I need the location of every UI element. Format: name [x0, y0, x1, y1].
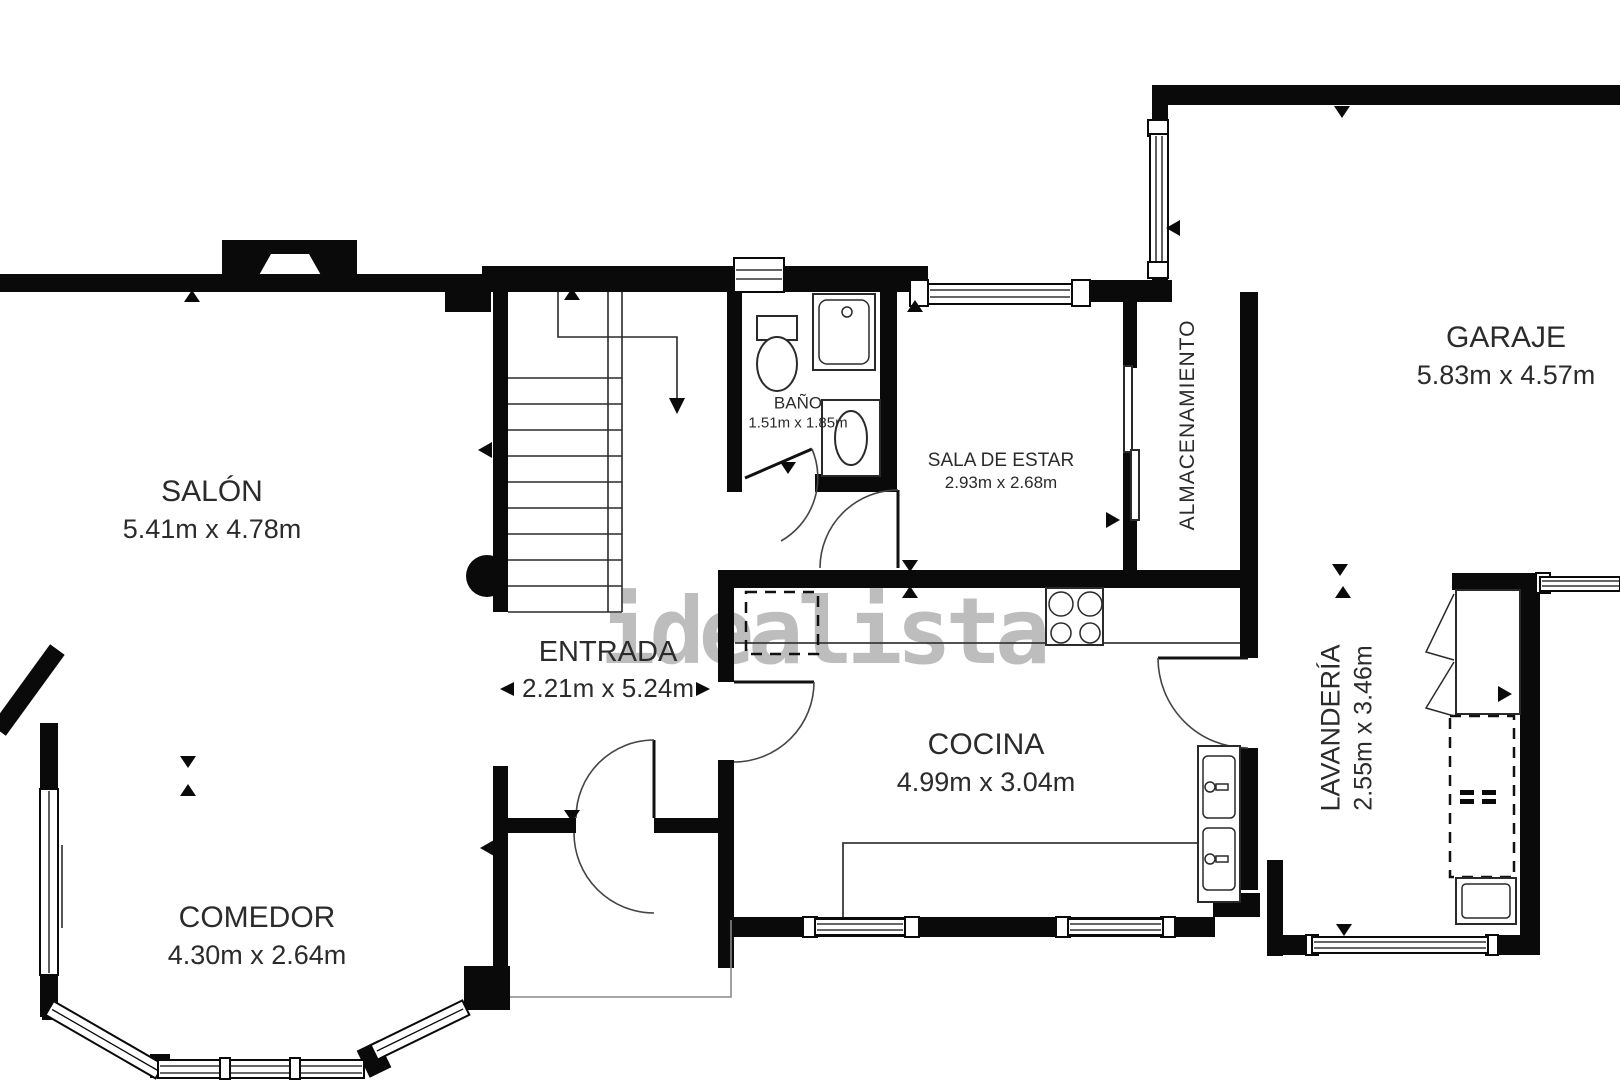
bay-window-bottom [158, 1058, 364, 1079]
sala-de-estar-name: SALA DE ESTAR [928, 449, 1074, 472]
garaje-dims: 5.83m x 4.57m [1417, 357, 1596, 393]
garage-left-window [1148, 120, 1168, 278]
kitchen-double-sink [1198, 746, 1240, 902]
bay-window-right-diagonal [371, 1000, 470, 1059]
comedor-name: COMEDOR [168, 899, 347, 937]
room-label-garaje: GARAJE 5.83m x 4.57m [1417, 319, 1596, 393]
sala-door [820, 490, 898, 568]
laundry-door [1158, 658, 1248, 748]
kitchen-door [734, 682, 814, 762]
comedor-left-window [40, 789, 62, 975]
stove [1046, 588, 1103, 645]
lavanderia-name: LAVANDERÍA [1314, 644, 1348, 811]
kitchen-window-right [1056, 917, 1175, 937]
lavanderia-d ims: 2.55m x 3.46m [1348, 644, 1381, 811]
room-label-entrada: ENTRADA 2.21m x 5.24m [522, 634, 694, 706]
garage-bottom-window [1536, 573, 1620, 593]
bathroom-fixtures [757, 294, 880, 476]
sala-de-estar-dims: 2.93m x 2.68m [928, 472, 1074, 493]
entrada-dims: 2.21m x 5.24m [522, 671, 694, 706]
bano-dims: 1.51m x 1.85m [748, 414, 847, 433]
kitchen-window-left [803, 917, 919, 937]
cocina-dims: 4.99m x 3.04m [897, 764, 1076, 800]
room-label-almacenamiento: ALMACENAMIENTO [1176, 320, 1200, 531]
cocina-name: COCINA [897, 726, 1076, 764]
salon-name: SALÓN [123, 473, 302, 511]
entrada-name: ENTRADA [522, 634, 694, 671]
front-door [574, 740, 654, 913]
sala-window [910, 280, 1090, 306]
porch-outline [510, 920, 731, 997]
bathroom-window [734, 258, 784, 292]
garaje-name: GARAJE [1417, 319, 1596, 357]
floorplan-canvas: idealista [0, 0, 1620, 1080]
fridge-space [746, 592, 818, 654]
room-label-sala-de-estar: SALA DE ESTAR 2.93m x 2.68m [928, 449, 1074, 493]
laundry-closet [1456, 590, 1520, 714]
bay-window-left-diagonal [46, 1001, 164, 1078]
washer-space [1450, 716, 1514, 877]
laundry-window [1306, 935, 1498, 955]
opening-markers [180, 106, 1512, 936]
laundry-closet-bifold-door [1426, 594, 1454, 716]
room-label-cocina: COCINA 4.99m x 3.04m [897, 726, 1076, 800]
laundry-fixtures [1450, 590, 1520, 924]
room-label-bano: BAÑO 1.51m x 1.85m [748, 394, 847, 433]
toilet [757, 316, 797, 391]
almacenamiento-name: ALMACENAMIENTO [1176, 320, 1200, 531]
comedor-dims: 4.30m x 2.64m [168, 937, 347, 973]
bano-name: BAÑO [748, 394, 847, 414]
column [466, 555, 508, 597]
room-label-lavanderia: LAVANDERÍA 2.55m x 3.46m [1314, 644, 1381, 811]
room-label-comedor: COMEDOR 4.30m x 2.64m [168, 899, 347, 973]
stairs-down-arrow [669, 398, 685, 414]
shower [813, 294, 875, 370]
salon-dims: 5.41m x 4.78m [123, 511, 302, 547]
room-label-salon: SALÓN 5.41m x 4.78m [123, 473, 302, 547]
laundry-sink [1456, 878, 1516, 924]
